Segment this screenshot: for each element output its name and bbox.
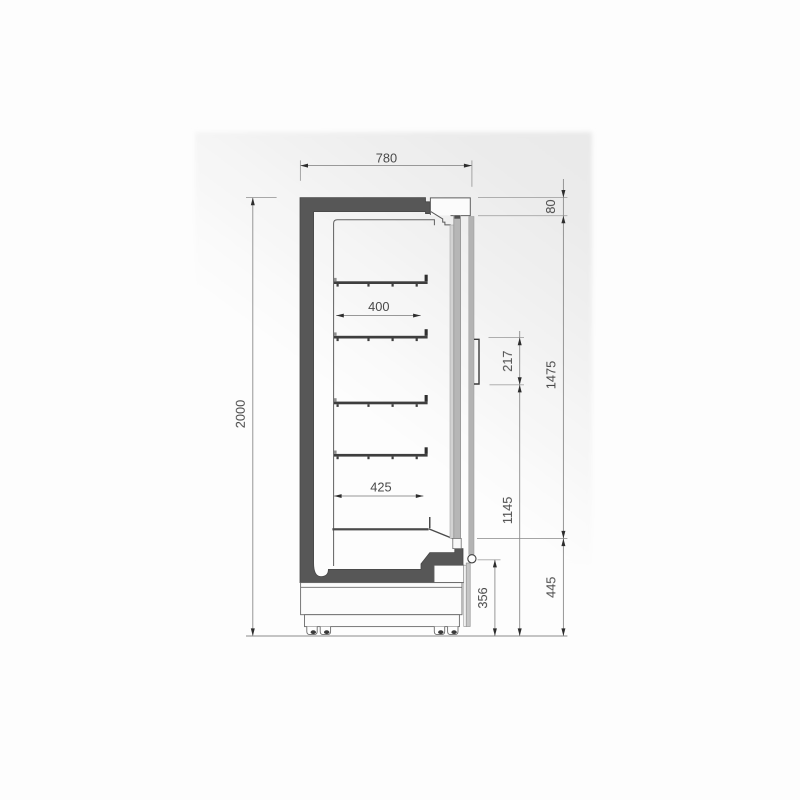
svg-text:1475: 1475 — [543, 361, 558, 389]
svg-text:80: 80 — [543, 199, 558, 213]
svg-text:425: 425 — [370, 480, 391, 495]
svg-text:356: 356 — [475, 587, 490, 608]
svg-text:1145: 1145 — [500, 497, 515, 525]
svg-text:780: 780 — [376, 150, 397, 165]
svg-text:445: 445 — [543, 577, 558, 598]
svg-text:400: 400 — [368, 299, 389, 314]
svg-text:217: 217 — [500, 351, 515, 372]
svg-text:2000: 2000 — [233, 400, 248, 428]
